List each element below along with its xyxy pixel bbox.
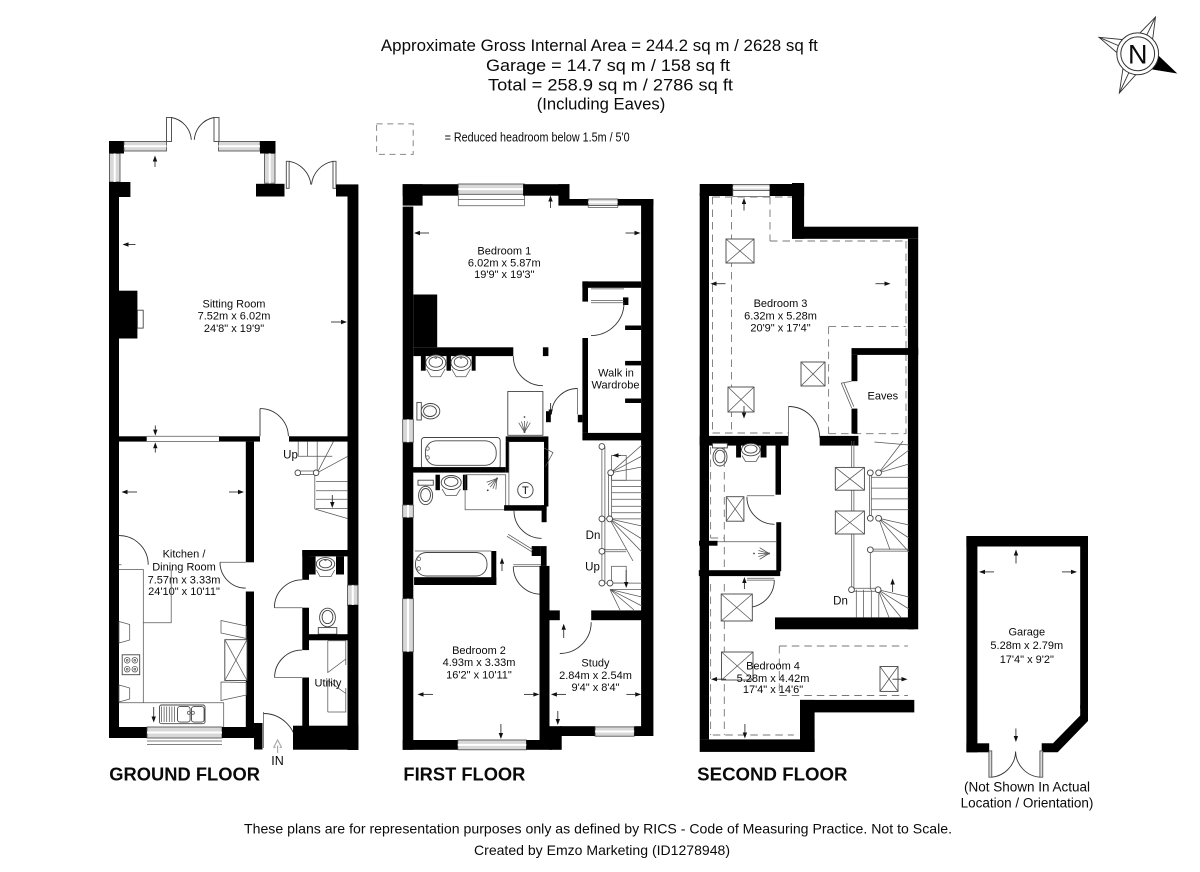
svg-text:= Reduced headroom below 1.5m: = Reduced headroom below 1.5m / 5'0 bbox=[445, 130, 630, 145]
svg-text:7.52m x 6.02m: 7.52m x 6.02m bbox=[198, 311, 271, 323]
svg-text:20'9" x 17'4": 20'9" x 17'4" bbox=[750, 322, 810, 334]
svg-text:GROUND FLOOR: GROUND FLOOR bbox=[109, 763, 260, 784]
svg-text:Sitting Room: Sitting Room bbox=[203, 299, 266, 311]
svg-text:(Not Shown In Actual: (Not Shown In Actual bbox=[964, 780, 1090, 795]
svg-text:Dn: Dn bbox=[586, 530, 601, 542]
svg-text:6.32m x 5.28m: 6.32m x 5.28m bbox=[744, 310, 817, 322]
svg-text:Garage: Garage bbox=[1008, 627, 1045, 639]
svg-text:9'4" x 8'4": 9'4" x 8'4" bbox=[571, 682, 619, 694]
svg-text:4.93m x 3.33m: 4.93m x 3.33m bbox=[443, 657, 516, 669]
svg-text:Wardrobe: Wardrobe bbox=[592, 380, 640, 392]
svg-text:2.84m x 2.54m: 2.84m x 2.54m bbox=[559, 670, 632, 682]
svg-text:T: T bbox=[522, 485, 529, 497]
svg-text:Dn: Dn bbox=[833, 596, 848, 608]
svg-text:17'4" x 9'2": 17'4" x 9'2" bbox=[1000, 654, 1054, 666]
svg-text:Garage = 14.7 sq m / 158 sq ft: Garage = 14.7 sq m / 158 sq ft bbox=[486, 56, 730, 75]
svg-text:Walk in: Walk in bbox=[598, 368, 634, 380]
svg-text:17'4" x 14'6": 17'4" x 14'6" bbox=[743, 684, 803, 696]
svg-text:Created by Emzo Marketing (ID1: Created by Emzo Marketing (ID1278948) bbox=[474, 842, 730, 858]
svg-text:5.28m x 2.79m: 5.28m x 2.79m bbox=[990, 640, 1063, 652]
svg-text:6.02m x 5.87m: 6.02m x 5.87m bbox=[468, 257, 541, 269]
svg-text:Kitchen /: Kitchen / bbox=[163, 549, 207, 561]
svg-text:Dining Room: Dining Room bbox=[152, 562, 216, 574]
svg-text:These plans are for representa: These plans are for representation purpo… bbox=[244, 821, 952, 837]
svg-text:Utility: Utility bbox=[315, 678, 342, 690]
svg-text:(Including Eaves): (Including Eaves) bbox=[537, 95, 666, 114]
svg-text:24'10" x 10'11": 24'10" x 10'11" bbox=[148, 586, 220, 598]
svg-text:Location / Orientation): Location / Orientation) bbox=[961, 796, 1094, 811]
svg-text:16'2" x 10'11": 16'2" x 10'11" bbox=[446, 669, 512, 681]
svg-text:Bedroom 3: Bedroom 3 bbox=[754, 298, 808, 310]
svg-text:19'9" x 19'3": 19'9" x 19'3" bbox=[474, 269, 534, 281]
svg-text:IN: IN bbox=[271, 754, 284, 768]
svg-text:24'8" x 19'9": 24'8" x 19'9" bbox=[204, 323, 264, 335]
svg-text:Bedroom 4: Bedroom 4 bbox=[746, 660, 800, 672]
svg-text:Bedroom 2: Bedroom 2 bbox=[452, 645, 506, 657]
svg-text:SECOND FLOOR: SECOND FLOOR bbox=[697, 763, 847, 784]
svg-text:Up: Up bbox=[585, 562, 600, 574]
svg-text:Total = 258.9 sq m / 2786 sq f: Total = 258.9 sq m / 2786 sq ft bbox=[488, 76, 733, 95]
svg-text:Up: Up bbox=[283, 450, 298, 462]
svg-text:Approximate Gross Internal Are: Approximate Gross Internal Area = 244.2 … bbox=[381, 36, 818, 55]
svg-text:7.57m x 3.33m: 7.57m x 3.33m bbox=[148, 574, 221, 586]
svg-text:FIRST FLOOR: FIRST FLOOR bbox=[403, 763, 525, 784]
svg-text:Eaves: Eaves bbox=[868, 391, 899, 403]
svg-text:Bedroom 1: Bedroom 1 bbox=[477, 245, 531, 257]
svg-text:Study: Study bbox=[581, 658, 610, 670]
svg-text:N: N bbox=[1128, 40, 1148, 70]
